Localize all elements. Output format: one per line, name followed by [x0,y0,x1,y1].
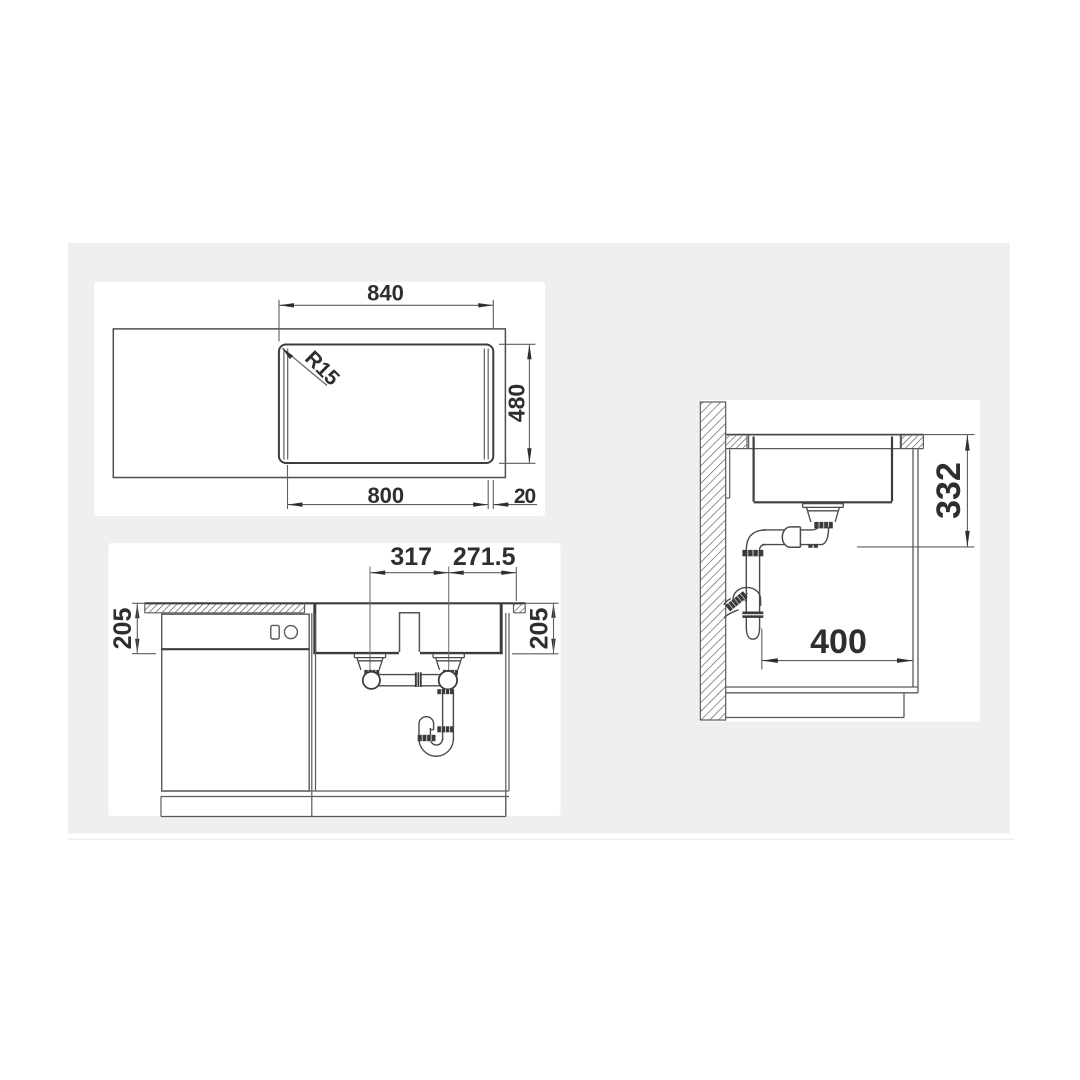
svg-text:205: 205 [109,608,137,650]
svg-text:400: 400 [810,623,867,661]
svg-text:271.5: 271.5 [453,543,516,571]
svg-text:205: 205 [525,608,553,650]
svg-text:840: 840 [367,281,404,306]
svg-text:317: 317 [390,543,432,571]
svg-text:332: 332 [930,462,968,519]
svg-text:800: 800 [367,483,404,508]
svg-text:480: 480 [504,384,530,422]
svg-text:20: 20 [514,485,536,508]
